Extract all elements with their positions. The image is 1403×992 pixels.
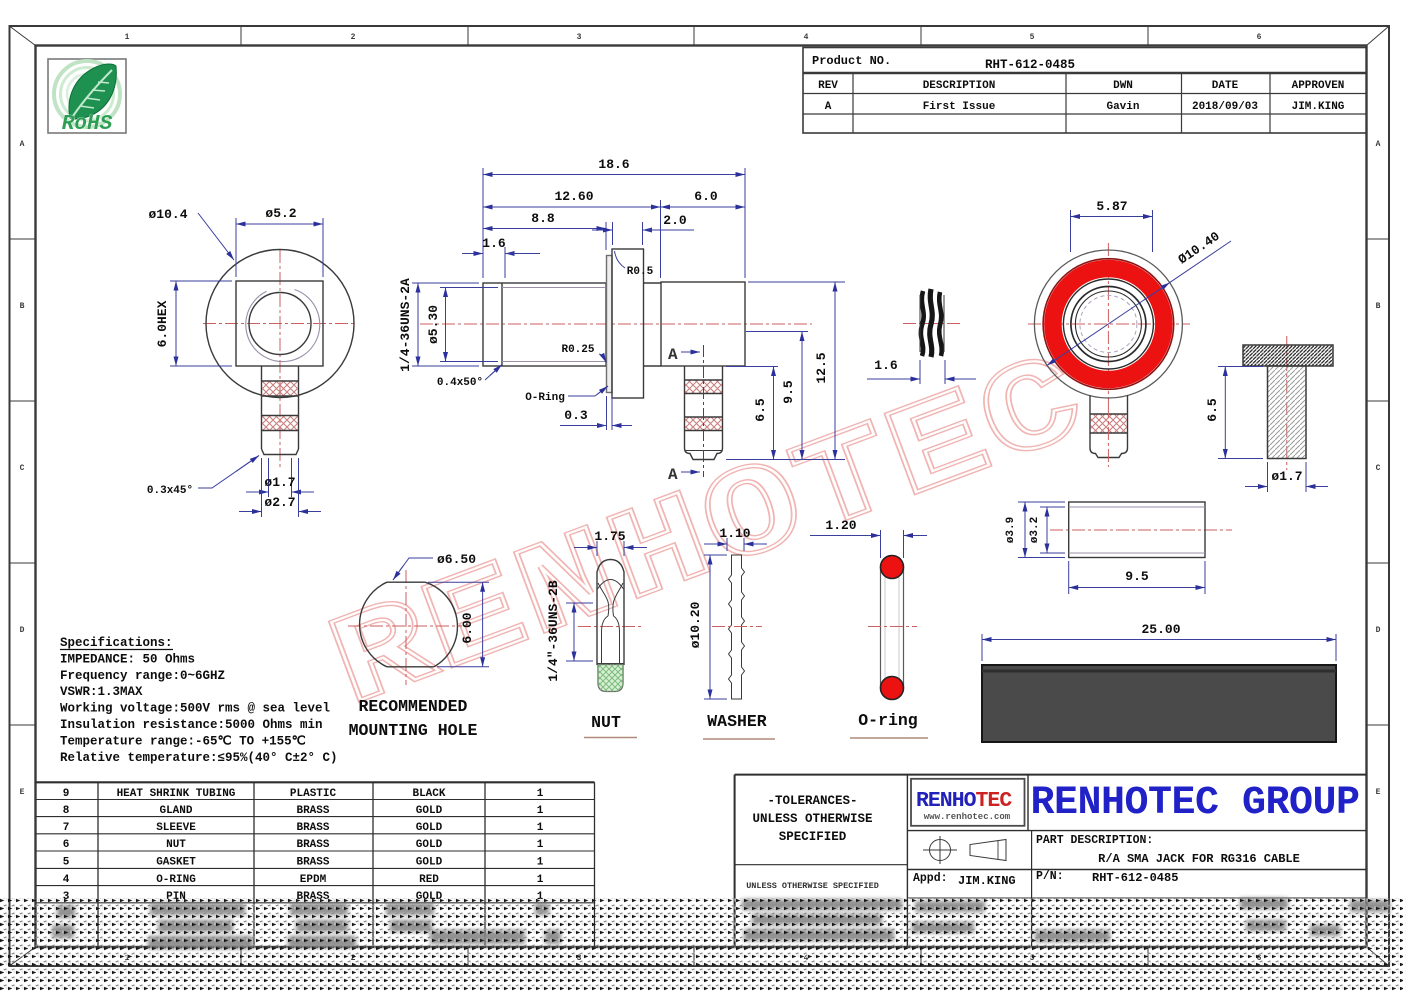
svg-text:GOLD: GOLD (416, 857, 443, 869)
svg-text:A: A (20, 140, 25, 149)
svg-text:1: 1 (537, 805, 544, 817)
svg-text:PLASTIC: PLASTIC (290, 788, 337, 800)
svg-text:GOLD: GOLD (416, 839, 443, 851)
svg-text:GOLD: GOLD (416, 822, 443, 834)
svg-text:JIM.KING: JIM.KING (1292, 101, 1345, 113)
svg-text:Appd:: Appd: (913, 872, 948, 885)
svg-text:4: 4 (63, 874, 70, 886)
svg-text:1: 1 (537, 874, 544, 886)
svg-text:Frequency range:0~6GHZ: Frequency range:0~6GHZ (60, 669, 225, 683)
svg-text:8: 8 (63, 805, 70, 817)
svg-text:JIM.KING: JIM.KING (958, 874, 1016, 888)
svg-text:HEAT SHRINK TUBING: HEAT SHRINK TUBING (117, 788, 236, 800)
svg-text:1/4-36UNS-2A: 1/4-36UNS-2A (398, 278, 413, 372)
svg-text:12.60: 12.60 (554, 189, 593, 204)
svg-text:8.8: 8.8 (531, 211, 555, 226)
svg-text:First Issue: First Issue (923, 101, 996, 113)
svg-text:6: 6 (1257, 33, 1262, 42)
svg-text:BRASS: BRASS (296, 857, 329, 869)
svg-text:0.4x50°: 0.4x50° (437, 377, 483, 389)
svg-text:ø2.7: ø2.7 (264, 495, 295, 510)
svg-text:ø10.4: ø10.4 (148, 207, 187, 222)
svg-text:E: E (1376, 788, 1381, 797)
svg-text:O-Ring: O-Ring (525, 392, 565, 404)
svg-text:NUT: NUT (591, 713, 621, 732)
svg-text:Working voltage:500V rms @ sea: Working voltage:500V rms @ sea level (60, 702, 330, 716)
svg-text:1: 1 (537, 839, 544, 851)
svg-text:GASKET: GASKET (156, 857, 196, 869)
svg-text:DESCRIPTION: DESCRIPTION (923, 80, 996, 92)
svg-text:0.3x45°: 0.3x45° (147, 485, 193, 497)
svg-text:1/4"-36UNS-2B: 1/4"-36UNS-2B (546, 580, 561, 682)
svg-text:Temperature range:-65℃ TO +155: Temperature range:-65℃ TO +155℃ (60, 735, 306, 749)
svg-text:BRASS: BRASS (296, 839, 329, 851)
svg-text:www.renhotec.com: www.renhotec.com (924, 812, 1011, 822)
svg-text:RENHOTEC: RENHOTEC (916, 789, 1012, 813)
svg-text:4: 4 (804, 33, 809, 42)
svg-text:1.75: 1.75 (594, 529, 625, 544)
svg-text:VSWR:1.3MAX: VSWR:1.3MAX (60, 685, 143, 699)
svg-text:ø10.20: ø10.20 (688, 601, 703, 648)
svg-text:RoHS: RoHS (62, 113, 113, 136)
svg-text:1.20: 1.20 (825, 518, 856, 533)
svg-text:SLEEVE: SLEEVE (156, 822, 196, 834)
svg-text:9.5: 9.5 (1125, 569, 1149, 584)
svg-text:1: 1 (537, 822, 544, 834)
svg-text:ø3.2: ø3.2 (1029, 517, 1041, 543)
svg-text:GOLD: GOLD (416, 805, 443, 817)
svg-text:5: 5 (63, 857, 70, 869)
svg-text:Specifications:: Specifications: (60, 636, 173, 650)
svg-text:1: 1 (537, 788, 544, 800)
svg-text:2: 2 (351, 33, 356, 42)
svg-text:UNLESS OTHERWISE SPECIFIED: UNLESS OTHERWISE SPECIFIED (746, 881, 879, 891)
svg-text:BRASS: BRASS (296, 805, 329, 817)
svg-text:IMPEDANCE: 50 Ohms: IMPEDANCE: 50 Ohms (60, 653, 195, 667)
svg-text:ø5.2: ø5.2 (265, 206, 296, 221)
svg-text:7: 7 (63, 822, 70, 834)
svg-text:PART DESCRIPTION:: PART DESCRIPTION: (1036, 834, 1153, 847)
svg-text:GLAND: GLAND (159, 805, 192, 817)
svg-text:C: C (20, 464, 25, 473)
svg-text:MOUNTING HOLE: MOUNTING HOLE (349, 721, 478, 740)
svg-text:A: A (668, 466, 678, 484)
svg-text:Product NO.: Product NO. (812, 54, 891, 68)
svg-text:REV: REV (818, 80, 838, 92)
svg-text:B: B (20, 302, 25, 311)
svg-text:Gavin: Gavin (1106, 101, 1139, 113)
svg-text:ø5.30: ø5.30 (426, 305, 441, 344)
svg-text:-TOLERANCES-: -TOLERANCES- (767, 794, 857, 808)
svg-text:1: 1 (537, 857, 544, 869)
svg-text:6.0HEX: 6.0HEX (155, 300, 170, 347)
svg-text:12.5: 12.5 (814, 352, 829, 383)
svg-text:A: A (668, 346, 678, 364)
svg-text:RED: RED (419, 874, 439, 886)
svg-text:1.10: 1.10 (719, 526, 750, 541)
svg-text:2018/09/03: 2018/09/03 (1192, 101, 1258, 113)
svg-text:O-ring: O-ring (858, 711, 917, 730)
svg-text:RHT-612-0485: RHT-612-0485 (1092, 871, 1178, 885)
svg-text:NUT: NUT (166, 839, 186, 851)
svg-text:5: 5 (1030, 33, 1035, 42)
svg-text:ø1.7: ø1.7 (264, 475, 295, 490)
svg-text:DATE: DATE (1212, 80, 1239, 92)
svg-text:Relative temperature:≤95%(40°: Relative temperature:≤95%(40° C±2° C) (60, 751, 338, 765)
svg-text:6: 6 (63, 839, 70, 851)
svg-text:EPDM: EPDM (300, 874, 327, 886)
svg-text:6.5: 6.5 (1205, 398, 1220, 422)
svg-text:5.87: 5.87 (1096, 199, 1127, 214)
svg-text:D: D (1376, 626, 1381, 635)
svg-text:RHT-612-0485: RHT-612-0485 (985, 58, 1075, 72)
svg-text:Insulation resistance:5000 Ohm: Insulation resistance:5000 Ohms min (60, 718, 323, 732)
svg-text:R/A SMA JACK FOR RG316 CABLE: R/A SMA JACK FOR RG316 CABLE (1098, 852, 1300, 866)
svg-text:1.6: 1.6 (482, 236, 506, 251)
svg-text:DWN: DWN (1113, 80, 1133, 92)
svg-text:9.5: 9.5 (781, 380, 796, 404)
svg-text:C: C (1376, 464, 1381, 473)
svg-text:1: 1 (125, 33, 130, 42)
svg-text:18.6: 18.6 (598, 157, 629, 172)
svg-text:UNLESS OTHERWISE: UNLESS OTHERWISE (752, 812, 872, 826)
svg-text:B: B (1376, 302, 1381, 311)
svg-text:R0.5: R0.5 (627, 266, 654, 278)
svg-text:ø6.50: ø6.50 (437, 552, 476, 567)
svg-text:BLACK: BLACK (412, 788, 445, 800)
svg-text:6.5: 6.5 (753, 398, 768, 422)
svg-text:A: A (825, 101, 832, 113)
svg-text:RENHOTEC GROUP: RENHOTEC GROUP (1030, 781, 1359, 826)
svg-text:R0.25: R0.25 (561, 344, 594, 356)
svg-text:ø1.7: ø1.7 (1271, 469, 1302, 484)
svg-text:A: A (1376, 140, 1381, 149)
svg-text:9: 9 (63, 788, 70, 800)
svg-text:SPECIFIED: SPECIFIED (779, 830, 847, 844)
svg-text:E: E (20, 788, 25, 797)
svg-text:2.0: 2.0 (663, 213, 687, 228)
svg-text:APPROVEN: APPROVEN (1292, 80, 1345, 92)
svg-text:RECOMMENDED: RECOMMENDED (359, 697, 468, 716)
svg-text:25.00: 25.00 (1141, 622, 1180, 637)
svg-text:O-RING: O-RING (156, 874, 196, 886)
svg-text:BRASS: BRASS (296, 822, 329, 834)
svg-text:1.6: 1.6 (874, 358, 898, 373)
svg-text:WASHER: WASHER (707, 712, 767, 731)
svg-text:3: 3 (577, 33, 582, 42)
svg-text:6.0: 6.0 (694, 189, 718, 204)
svg-text:P/N:: P/N: (1036, 870, 1064, 883)
svg-text:ø3.9: ø3.9 (1005, 517, 1017, 543)
svg-text:D: D (20, 626, 25, 635)
svg-text:6.00: 6.00 (460, 612, 475, 643)
svg-text:0.3: 0.3 (564, 408, 588, 423)
